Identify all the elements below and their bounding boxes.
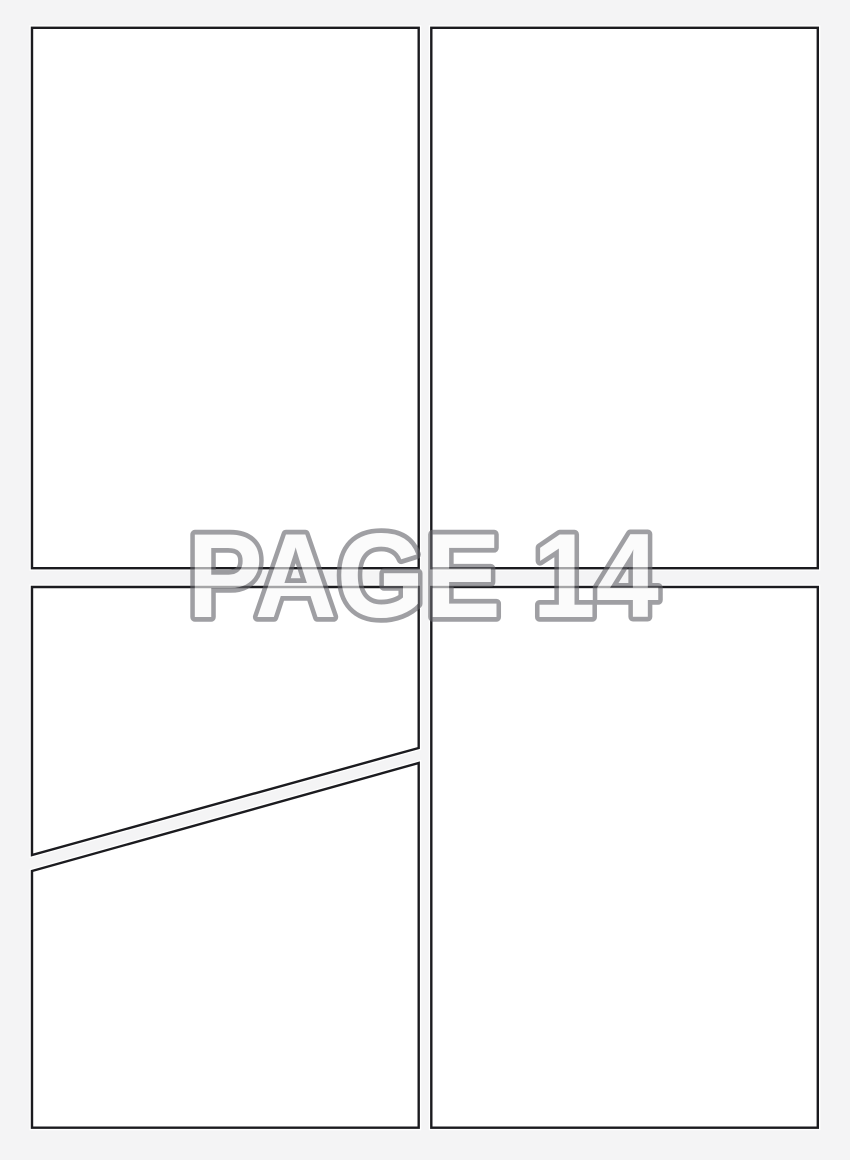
svg-text:PAGE 14: PAGE 14 <box>187 508 659 643</box>
